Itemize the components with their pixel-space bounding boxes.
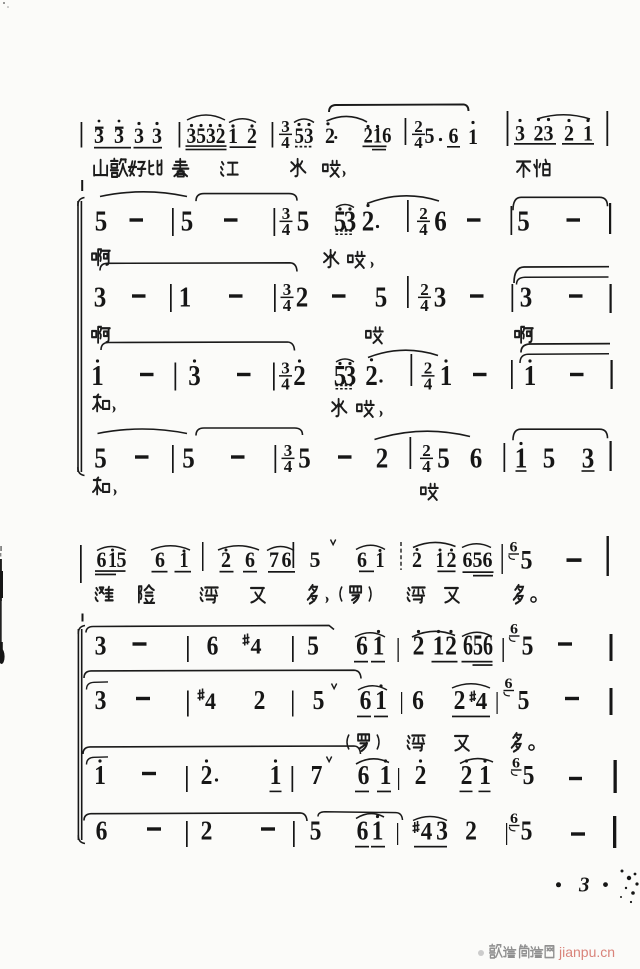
svg-text:3: 3 — [152, 123, 162, 148]
svg-text:5: 5 — [310, 816, 322, 846]
svg-text:4: 4 — [414, 133, 423, 152]
svg-text:6: 6 — [510, 540, 518, 556]
svg-text:1: 1 — [479, 760, 491, 790]
svg-text:2: 2 — [365, 360, 378, 392]
svg-text:5: 5 — [521, 816, 533, 846]
svg-text:1: 1 — [372, 816, 384, 846]
svg-text:6: 6 — [470, 443, 483, 475]
svg-text:5: 5 — [437, 443, 450, 475]
svg-text:1: 1 — [179, 282, 192, 314]
svg-text:3: 3 — [188, 360, 201, 392]
svg-text:4: 4 — [422, 457, 431, 476]
svg-text:jianpu.cn: jianpu.cn — [558, 944, 615, 960]
svg-text:6: 6 — [358, 760, 370, 790]
svg-text:4: 4 — [419, 220, 428, 239]
svg-text:4: 4 — [281, 133, 290, 152]
svg-text:1: 1 — [270, 760, 282, 790]
svg-text:6: 6 — [207, 631, 219, 661]
svg-text:5: 5 — [313, 685, 325, 715]
svg-text:2: 2 — [201, 816, 213, 846]
svg-text:5: 5 — [523, 760, 535, 790]
svg-text:4: 4 — [476, 689, 488, 715]
svg-text:3: 3 — [520, 282, 533, 314]
svg-text:7: 7 — [269, 547, 279, 572]
svg-text:2: 2 — [254, 685, 266, 715]
svg-text:5: 5 — [425, 123, 435, 148]
svg-text:5: 5 — [375, 282, 388, 314]
svg-text:5: 5 — [298, 443, 311, 475]
svg-text:1: 1 — [94, 760, 106, 790]
svg-text:4: 4 — [421, 819, 433, 846]
svg-text:6: 6 — [434, 206, 447, 238]
svg-text:1: 1 — [440, 360, 453, 392]
svg-text:4: 4 — [251, 634, 262, 659]
svg-text:2: 2 — [362, 206, 375, 238]
svg-text:3: 3 — [582, 443, 595, 475]
svg-text:4: 4 — [424, 375, 433, 394]
svg-text:2: 2 — [376, 443, 389, 475]
svg-text:1: 1 — [433, 631, 445, 661]
svg-text:5: 5 — [307, 631, 319, 661]
svg-text:6: 6 — [357, 816, 369, 846]
svg-text:1: 1 — [91, 360, 104, 392]
svg-text:3: 3 — [95, 631, 107, 661]
svg-text:4: 4 — [281, 375, 290, 394]
svg-text:2: 2 — [465, 816, 477, 846]
svg-text:2: 2 — [564, 121, 574, 146]
svg-text:1: 1 — [583, 121, 593, 146]
svg-text:2: 2 — [415, 760, 427, 790]
svg-text:6: 6 — [412, 685, 424, 715]
svg-text:4: 4 — [283, 296, 292, 315]
svg-text:5: 5 — [310, 547, 321, 572]
svg-text:1: 1 — [468, 124, 478, 149]
svg-text:6: 6 — [282, 547, 292, 572]
svg-text:4: 4 — [420, 296, 429, 315]
svg-text:3: 3 — [94, 282, 107, 314]
svg-text:6: 6 — [360, 685, 372, 715]
svg-text:6: 6 — [245, 547, 255, 572]
svg-text:1: 1 — [380, 760, 392, 790]
svg-text:4: 4 — [205, 689, 216, 714]
svg-text:6: 6 — [357, 547, 367, 572]
svg-text:4: 4 — [282, 220, 291, 239]
svg-text:23: 23 — [534, 121, 554, 146]
svg-text:4: 4 — [284, 457, 293, 476]
svg-text:5: 5 — [518, 685, 530, 715]
svg-text:2: 2 — [454, 685, 466, 715]
svg-text:656: 656 — [463, 547, 493, 572]
svg-text:5: 5 — [517, 206, 530, 238]
svg-text:2: 2 — [461, 760, 473, 790]
svg-text:2: 2 — [293, 360, 306, 392]
svg-text:6: 6 — [449, 123, 459, 148]
svg-text:7: 7 — [311, 760, 323, 790]
svg-text:6: 6 — [510, 811, 518, 827]
svg-text:53: 53 — [295, 123, 314, 148]
svg-text:3: 3 — [515, 121, 525, 146]
svg-text:6: 6 — [510, 622, 518, 638]
svg-text:5: 5 — [94, 443, 107, 475]
svg-text:2: 2 — [296, 282, 309, 314]
svg-text:5: 5 — [95, 206, 108, 238]
svg-text:6: 6 — [505, 676, 513, 692]
svg-text:5: 5 — [182, 443, 195, 475]
svg-text:1: 1 — [524, 360, 537, 392]
svg-text:5: 5 — [181, 206, 194, 238]
svg-text:5: 5 — [522, 631, 534, 661]
svg-text:6: 6 — [512, 756, 520, 772]
svg-text:1: 1 — [515, 443, 528, 475]
svg-text:5: 5 — [521, 546, 533, 575]
svg-text:3: 3 — [95, 685, 107, 715]
svg-text:2: 2 — [201, 760, 213, 790]
svg-text:3: 3 — [434, 282, 447, 314]
svg-text:5: 5 — [297, 206, 310, 238]
svg-text:6: 6 — [96, 816, 108, 846]
svg-text:3: 3 — [578, 873, 590, 897]
svg-text:3: 3 — [134, 123, 144, 148]
svg-text:2: 2 — [325, 123, 335, 148]
svg-text:6: 6 — [155, 547, 165, 572]
svg-text:5: 5 — [543, 443, 556, 475]
